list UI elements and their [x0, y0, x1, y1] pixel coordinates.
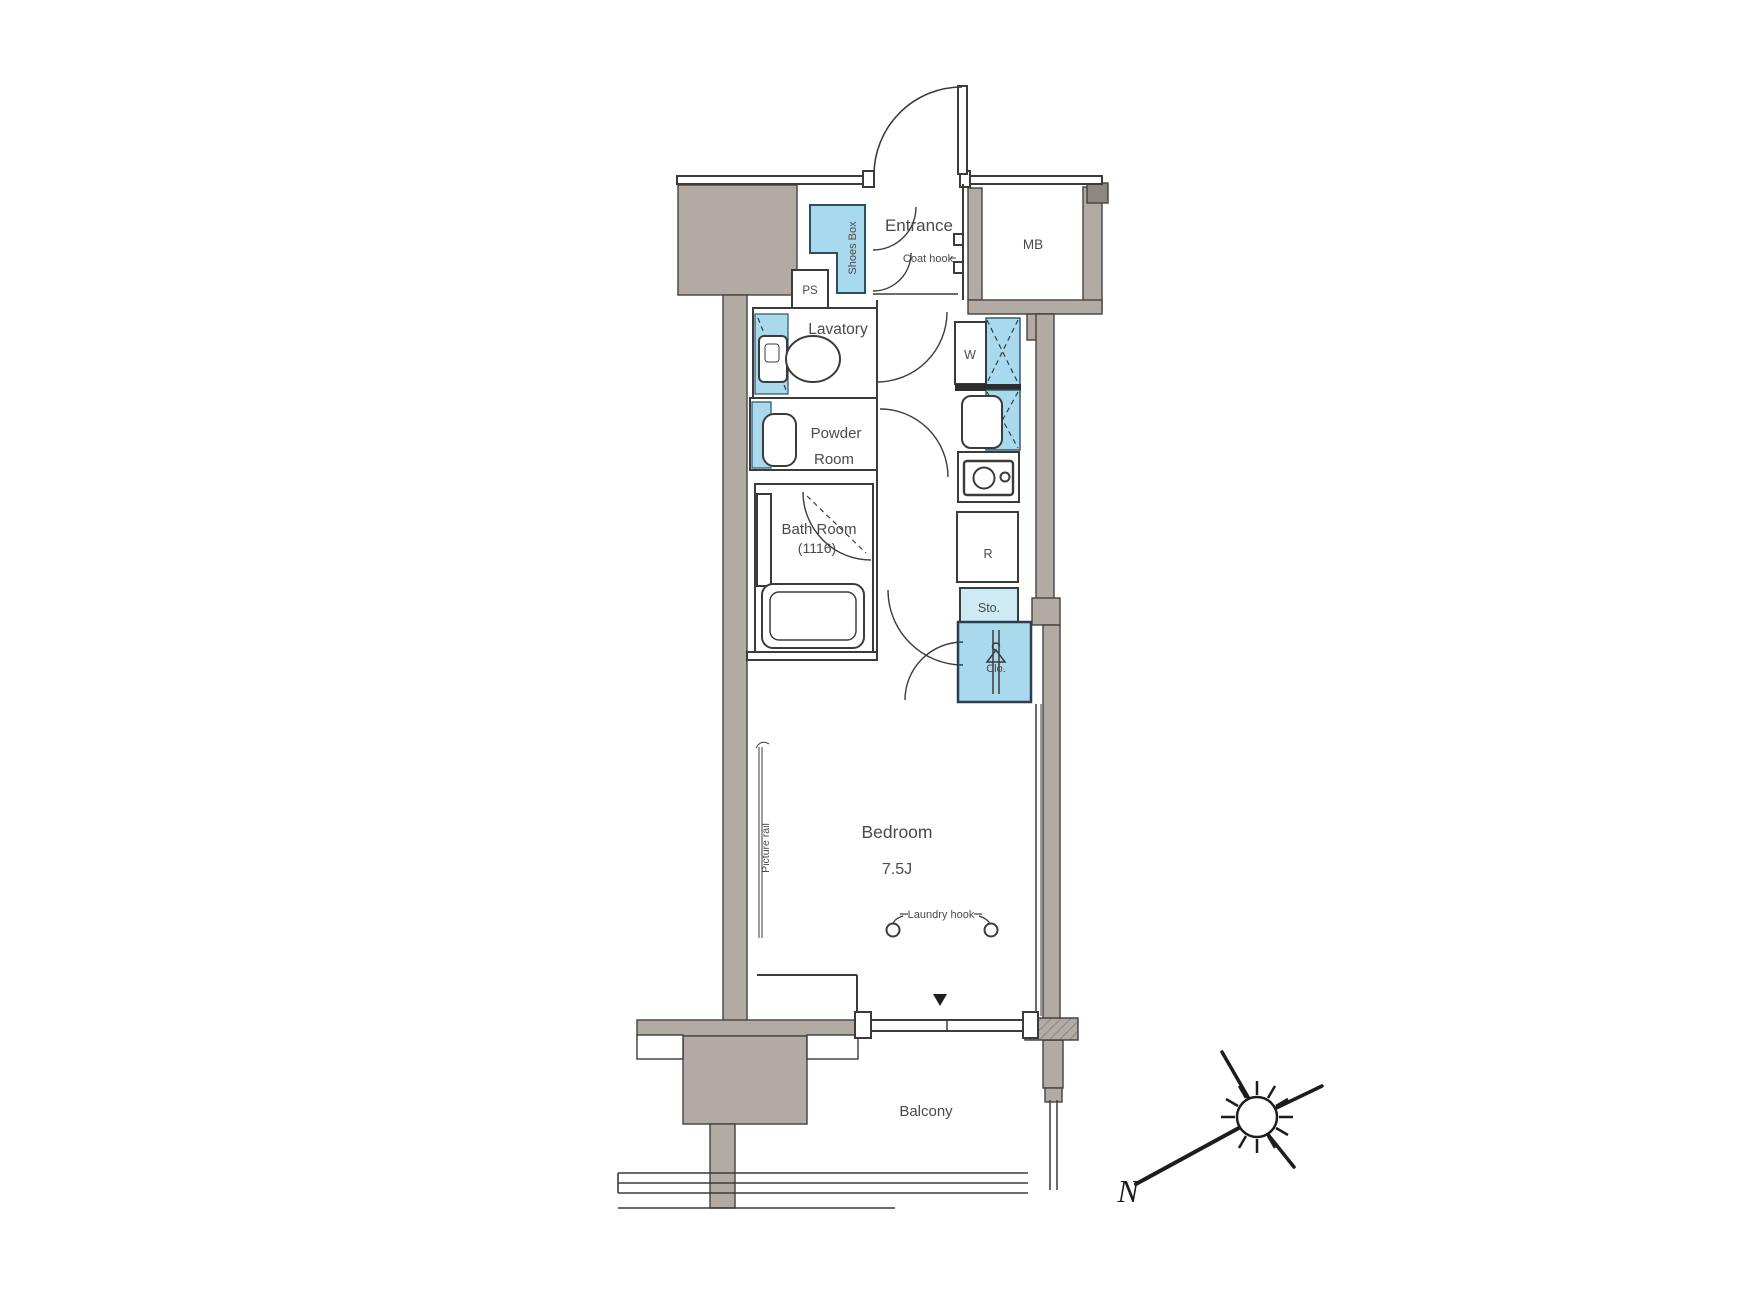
coat-hook-bracket-top: [954, 234, 963, 245]
bedroom-label: Bedroom: [861, 822, 932, 842]
window-post-left: [855, 1012, 871, 1038]
laundry-hook-label: Laundry hook: [908, 909, 975, 921]
laundry-hook-ring-right: [985, 924, 998, 937]
wall-mb-cap: [1087, 183, 1108, 203]
powder-room-label-line2: Room: [814, 451, 854, 468]
picture-rail-label: Picture rail: [760, 823, 772, 873]
powder-sink: [763, 414, 796, 466]
pipe-space-label: PS: [802, 285, 818, 297]
wall-bottom-left-band: [637, 1020, 858, 1036]
top-wall-left-segment: [677, 176, 873, 184]
meter-box-label: MB: [1023, 237, 1043, 252]
bedroom-size-label: 7.5J: [882, 861, 912, 878]
refrigerator-label: R: [983, 547, 992, 561]
lavatory-label: Lavatory: [808, 321, 868, 338]
toilet-cistern: [759, 336, 787, 382]
storage-label: Sto.: [978, 601, 1000, 615]
wall-top-left-block: [678, 185, 797, 295]
door-jamb-left: [863, 171, 874, 187]
top-wall-right-segment: [963, 176, 1102, 184]
entrance-door-leaf: [958, 86, 967, 174]
entrance-label: Entrance: [885, 216, 953, 235]
wall-right-step: [1032, 598, 1060, 625]
wall-mb-right: [1083, 187, 1102, 310]
coat-hook-label: Coat hook: [903, 253, 954, 265]
wall-cap-right: [807, 1035, 858, 1059]
wall-balcony-pillar: [683, 1036, 807, 1124]
floor-plan-page: Shoes Box Entrance Coat hook PS MB Lavat…: [0, 0, 1753, 1304]
floor-plan: Shoes Box Entrance Coat hook PS MB Lavat…: [0, 0, 1753, 1304]
toilet-bowl: [786, 336, 840, 382]
shoes-box-label: Shoes Box: [847, 221, 859, 275]
powder-room-label-line1: Powder: [811, 425, 862, 442]
closet-label: Clo.: [986, 663, 1006, 675]
wall-right-below-2: [1045, 1088, 1062, 1102]
wall-right-upper: [1036, 314, 1054, 610]
wall-right-below-1: [1043, 1040, 1063, 1088]
wall-cap-left: [637, 1035, 683, 1059]
wall-right-lower: [1043, 625, 1060, 1020]
window-post-right: [1023, 1012, 1038, 1038]
laundry-hook-ring-left: [887, 924, 900, 937]
bath-deck: [757, 494, 771, 586]
bath-room-size-label: (1116): [798, 540, 836, 556]
kitchen-sink: [962, 396, 1002, 448]
bath-room: Bath Room (1116): [747, 484, 877, 660]
wall-mb-left: [968, 188, 982, 300]
balcony-label: Balcony: [899, 1103, 953, 1120]
bath-room-label: Bath Room: [781, 521, 856, 538]
bathtub-outer: [762, 584, 864, 648]
washer-label: W: [964, 348, 976, 362]
wall-balcony-pillar-leg: [710, 1124, 735, 1208]
compass-sun-disc: [1237, 1097, 1277, 1137]
stove-burner-small: [1001, 473, 1010, 482]
bath-bedroom-wall: [747, 652, 877, 660]
wall-mb-bottom: [968, 300, 1102, 314]
stove-burner-large: [974, 468, 995, 489]
coat-hook-bracket-bottom: [954, 262, 963, 273]
wall-left-column: [723, 295, 747, 1022]
compass-north-label: N: [1116, 1173, 1140, 1209]
